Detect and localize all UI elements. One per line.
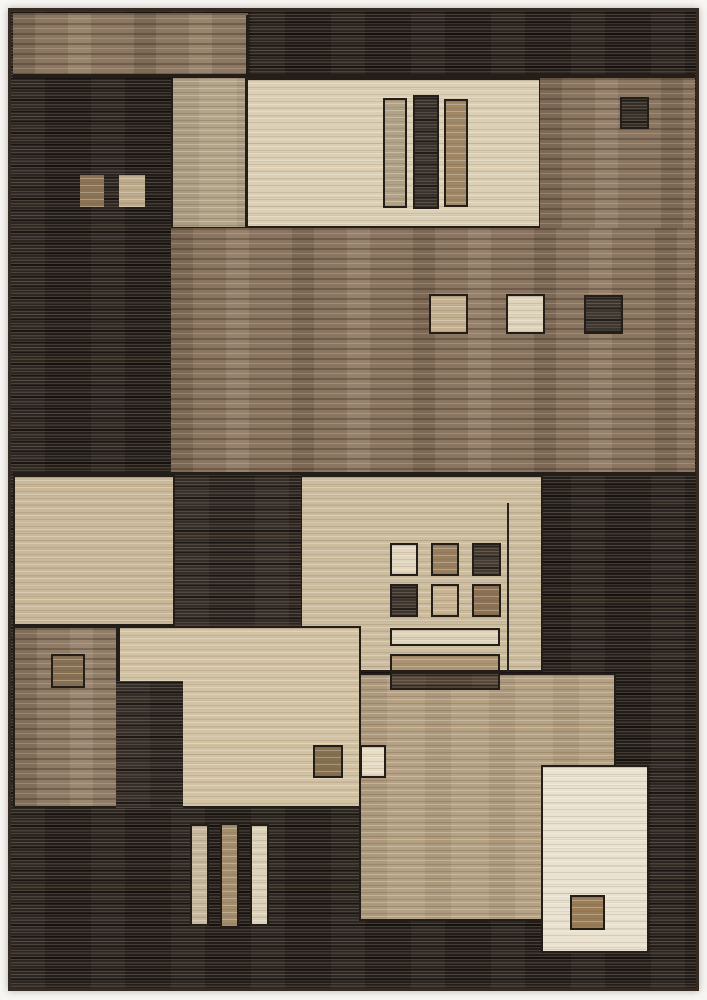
boundary-line-top-band bbox=[13, 74, 695, 78]
grid-square-brown-2 bbox=[472, 584, 501, 617]
small-square-dark-upper-right bbox=[620, 97, 649, 129]
rug-photo bbox=[8, 8, 699, 991]
small-square-dark-middle bbox=[584, 295, 623, 334]
brown-band-top-left bbox=[13, 13, 248, 76]
stripe-bar-tan bbox=[390, 654, 500, 672]
grid-square-brown bbox=[431, 543, 459, 576]
outlined-square-lower-left bbox=[51, 654, 85, 688]
upper-bar-right-tan bbox=[444, 99, 468, 207]
grid-square-beige bbox=[431, 584, 459, 617]
small-square-brown-inner bbox=[570, 895, 605, 930]
small-square-brown-pair bbox=[313, 745, 343, 778]
upper-bar-left-tan bbox=[383, 98, 407, 208]
tan-column-upper bbox=[171, 76, 247, 229]
small-square-cream-middle bbox=[506, 294, 545, 334]
dark-block-center bbox=[175, 475, 301, 626]
beige-panel-left bbox=[13, 475, 175, 626]
grid-square-dark-2 bbox=[390, 584, 418, 617]
grid-square-dark bbox=[472, 543, 501, 576]
brown-field-middle bbox=[171, 228, 695, 474]
brown-field-upper-right bbox=[540, 78, 695, 229]
small-square-brown-left bbox=[80, 175, 104, 207]
stripe-bar-cream bbox=[390, 628, 500, 646]
grid-square-cream bbox=[390, 543, 418, 576]
image-description: Geometric patchwork area rug photographe… bbox=[0, 0, 1, 1]
stripe-bar-dark-brown bbox=[390, 672, 500, 690]
bottom-bar-tan bbox=[220, 823, 239, 928]
bottom-bar-cream bbox=[250, 824, 269, 926]
small-square-cream-pair bbox=[360, 745, 386, 778]
bottom-bar-beige bbox=[190, 824, 209, 926]
seam-line-center-panel bbox=[507, 503, 509, 672]
small-square-beige-left bbox=[119, 175, 145, 207]
upper-bar-middle-dark bbox=[413, 95, 439, 209]
dark-block-lower-left bbox=[116, 681, 183, 808]
small-square-beige-middle bbox=[429, 294, 468, 334]
boundary-line-band-split bbox=[246, 15, 249, 75]
